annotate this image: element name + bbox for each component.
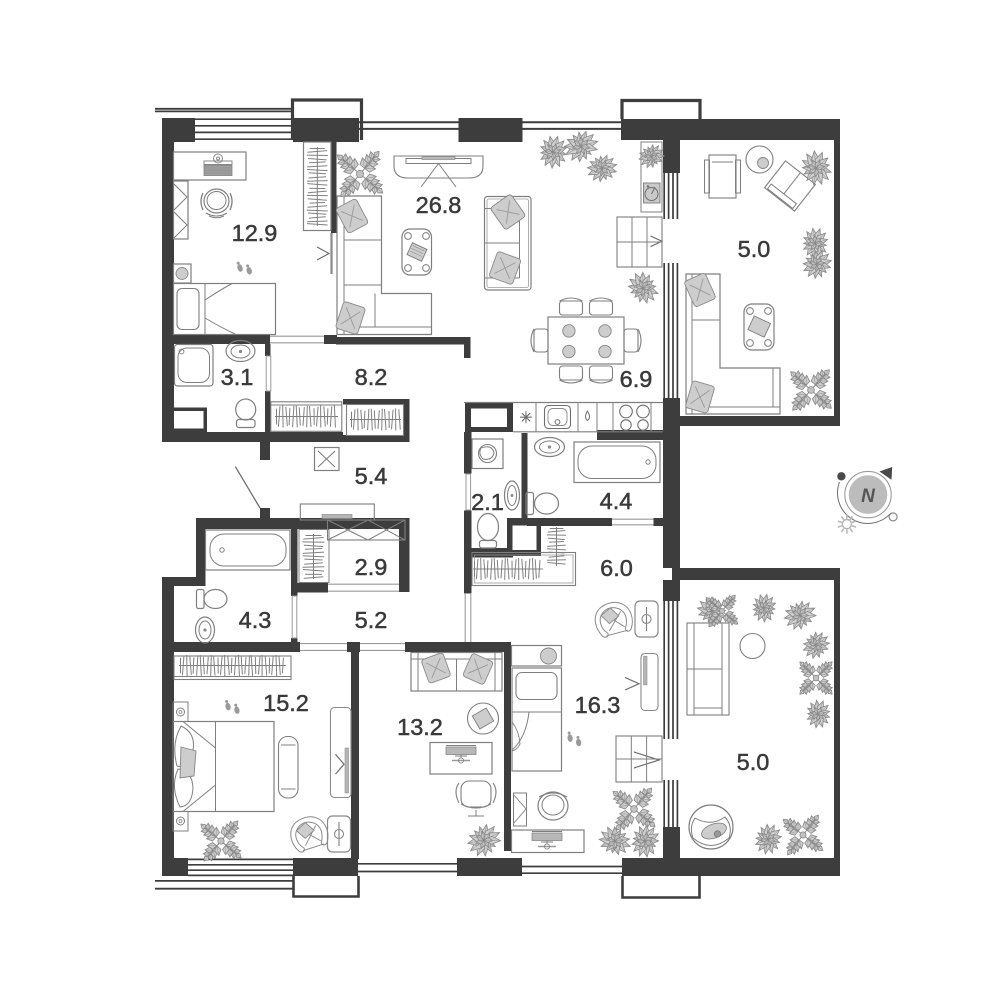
svg-text:13.2: 13.2 bbox=[397, 714, 443, 740]
svg-text:6.0: 6.0 bbox=[600, 555, 633, 581]
svg-text:5.0: 5.0 bbox=[737, 749, 770, 775]
svg-text:6.9: 6.9 bbox=[620, 366, 653, 392]
svg-text:5.4: 5.4 bbox=[355, 463, 388, 489]
svg-text:2.9: 2.9 bbox=[355, 554, 388, 580]
svg-text:N: N bbox=[861, 486, 876, 507]
svg-text:4.3: 4.3 bbox=[239, 607, 272, 633]
svg-text:5.0: 5.0 bbox=[738, 236, 771, 262]
svg-text:2.1: 2.1 bbox=[471, 489, 504, 515]
svg-text:12.9: 12.9 bbox=[232, 220, 278, 246]
svg-text:3.1: 3.1 bbox=[221, 364, 254, 390]
svg-text:26.8: 26.8 bbox=[416, 192, 462, 218]
svg-text:15.2: 15.2 bbox=[263, 690, 309, 716]
svg-text:8.2: 8.2 bbox=[355, 364, 388, 390]
svg-text:4.4: 4.4 bbox=[600, 488, 633, 514]
svg-text:5.2: 5.2 bbox=[355, 607, 388, 633]
svg-text:16.3: 16.3 bbox=[575, 692, 621, 718]
